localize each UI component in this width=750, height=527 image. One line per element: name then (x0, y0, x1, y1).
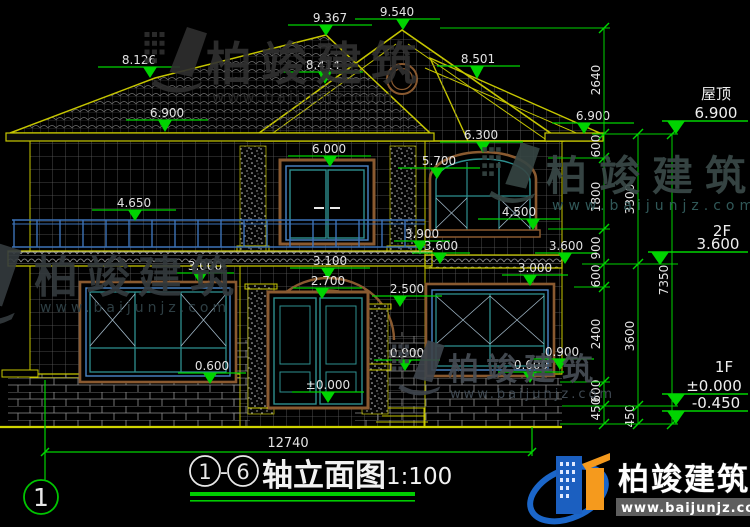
level-value: 6.300 (464, 128, 498, 142)
level-value: ±0.000 (686, 377, 742, 395)
level-name-1f: 1F (715, 358, 733, 376)
eave-left (6, 133, 434, 141)
svg-text:柏竣建筑: 柏竣建筑 (448, 352, 600, 388)
title-underline-thin (190, 500, 415, 502)
level-value: 9.367 (313, 11, 347, 25)
level-value: 3.600 (424, 239, 458, 253)
level-value: -0.450 (692, 394, 740, 412)
level-name-2f: 2F (713, 222, 731, 240)
svg-text:www.baijunjz.com: www.baijunjz.com (212, 88, 395, 106)
level-value: 3.000 (518, 261, 552, 275)
level-name-roof: 屋顶 (701, 85, 731, 103)
window-sill (426, 230, 540, 237)
axis-bubble: 1 (24, 480, 58, 514)
title-text: 轴立面图 (262, 458, 386, 494)
level-value: 3.600 (549, 239, 583, 253)
level-value: ±0.000 (306, 378, 350, 392)
chain-dimension-value: 2640 (589, 65, 603, 96)
total-width-value: 12740 (267, 436, 308, 451)
logo-building-orange (586, 468, 604, 510)
chain-dimension-value: 2400 (589, 319, 603, 350)
title-dash: - (220, 460, 228, 485)
level-marker: 3.600 (648, 235, 748, 265)
level-value: 6.000 (312, 142, 346, 156)
title-axis-start: 1 (198, 460, 211, 484)
elevation-drawing: 9.3679.5408.5018.1268.4146.9006.9006.300… (0, 0, 750, 527)
level-value: 0.600 (195, 359, 229, 373)
level-marker: 6.900 (662, 104, 748, 134)
level-marker: 9.540 (355, 5, 440, 30)
dimension-chain (604, 28, 672, 424)
level-value: 4.500 (502, 205, 536, 219)
svg-text:www.baijunjz.com: www.baijunjz.com (450, 387, 615, 402)
svg-text:柏竣建筑: 柏竣建筑 (206, 37, 426, 91)
svg-text:柏竣建筑: 柏竣建筑 (546, 152, 750, 200)
level-value: 6.900 (150, 106, 184, 120)
level-value: 3.100 (313, 254, 347, 268)
level-value: 8.501 (461, 52, 495, 66)
title-scale: 1:100 (386, 464, 452, 490)
level-value: 8.126 (122, 53, 156, 67)
level-value: 6.900 (576, 109, 610, 123)
brand-url: www.baijunjz.com (621, 501, 750, 516)
cad-elevation-screenshot: 9.3679.5408.5018.1268.4146.9006.9006.300… (0, 0, 750, 527)
level-value: 4.650 (117, 196, 151, 210)
brand-name: 柏竣建筑 (618, 462, 750, 498)
level-value: 2.500 (390, 282, 424, 296)
balcony-door (280, 160, 374, 244)
svg-text:www.baijunjz.com: www.baijunjz.com (40, 300, 230, 316)
drawing-title: 1 - 6 轴立面图 1:100 (190, 456, 452, 502)
brand-logo: 柏竣建筑 www.baijunjz.com (522, 453, 750, 527)
plinth-ledge (2, 370, 38, 377)
svg-text:柏竣建筑: 柏竣建筑 (34, 252, 242, 303)
chain-dimension-value: 3600 (623, 321, 637, 352)
level-value: 5.700 (422, 154, 456, 168)
level-value: 2.700 (311, 274, 345, 288)
chain-dimension-value: 900 (589, 237, 603, 260)
level-marker: 9.367 (288, 11, 372, 36)
title-underline-thick (190, 492, 415, 496)
level-value: 9.540 (380, 5, 414, 19)
chain-dimension-value: 7350 (657, 265, 671, 296)
svg-text:www.baijunjz.com: www.baijunjz.com (552, 198, 750, 214)
axis-bubble-number: 1 (33, 483, 49, 512)
title-axis-end: 6 (236, 460, 249, 484)
level-value: 6.900 (695, 104, 738, 122)
